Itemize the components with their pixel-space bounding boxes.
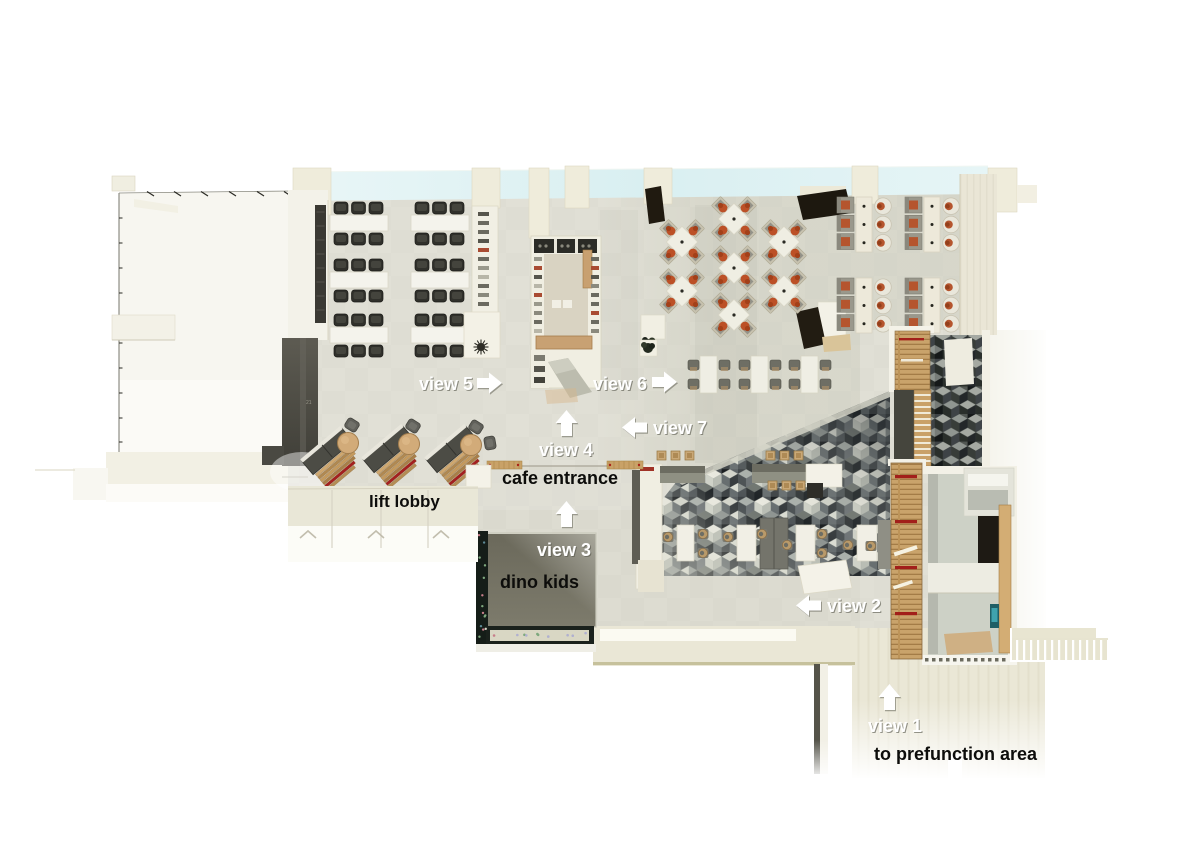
svg-text:21: 21: [306, 400, 312, 406]
svg-text:lift lobby: lift lobby: [369, 492, 440, 511]
svg-text:view 6: view 6: [593, 374, 647, 394]
svg-text:dino kids: dino kids: [500, 572, 579, 592]
svg-text:view 1: view 1: [868, 716, 922, 736]
svg-text:view 5: view 5: [419, 374, 473, 394]
svg-text:view 7: view 7: [653, 418, 707, 438]
svg-text:view 4: view 4: [539, 440, 593, 460]
svg-text:cafe entrance: cafe entrance: [502, 468, 618, 488]
svg-text:view 3: view 3: [537, 540, 591, 560]
svg-text:view 2: view 2: [827, 596, 881, 616]
svg-text:to prefunction area: to prefunction area: [874, 744, 1038, 764]
